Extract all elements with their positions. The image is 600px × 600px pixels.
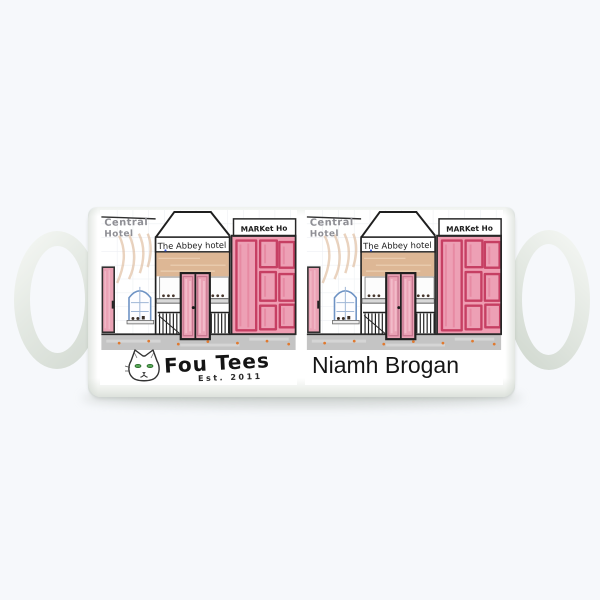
abbey-double-doors — [386, 273, 415, 339]
brand-established: Est. 2011 — [198, 372, 263, 383]
sign-central-line2: Hotel — [104, 229, 133, 240]
market-house-building: MARKet Ho — [437, 219, 501, 334]
left-pink-door — [308, 267, 320, 332]
mug-handle-right-hole — [522, 244, 575, 355]
left-pink-door — [102, 267, 114, 332]
door-handle — [192, 306, 195, 309]
sign-market-text: MARKet Ho — [241, 224, 288, 234]
brand-footer: Fou Tees Est. 2011 — [100, 350, 297, 385]
door-handle — [397, 306, 400, 309]
mug-handle-left-hole — [30, 246, 85, 353]
mug-mockup: Central Hotel — [0, 0, 600, 600]
storefront-drawing: Central Hotel — [305, 210, 503, 350]
sign-central-line2: Hotel — [310, 229, 339, 240]
print-panel-right: Central Hotel — [305, 210, 503, 385]
sign-abbey-text: The Abbey hotel — [362, 240, 432, 251]
abbey-double-doors — [181, 273, 210, 339]
blue-pencil-dot — [370, 249, 372, 251]
cat-face-icon — [124, 347, 164, 387]
sign-market-text: MARKet Ho — [446, 224, 493, 234]
storefront-drawing: Central Hotel — [100, 210, 297, 350]
sign-central-line1: Central — [310, 217, 354, 229]
print-panel-left: Central Hotel — [100, 210, 297, 385]
mug-body: Central Hotel — [88, 207, 515, 397]
sign-central-line1: Central — [104, 217, 148, 229]
blue-pencil-dot — [164, 249, 166, 251]
name-footer: Niamh Brogan — [305, 350, 503, 385]
mug-handle-right — [508, 230, 590, 370]
market-house-building: MARKet Ho — [232, 219, 296, 334]
personalized-name: Niamh Brogan — [312, 352, 459, 379]
sign-abbey-text: The Abbey hotel — [157, 240, 227, 251]
